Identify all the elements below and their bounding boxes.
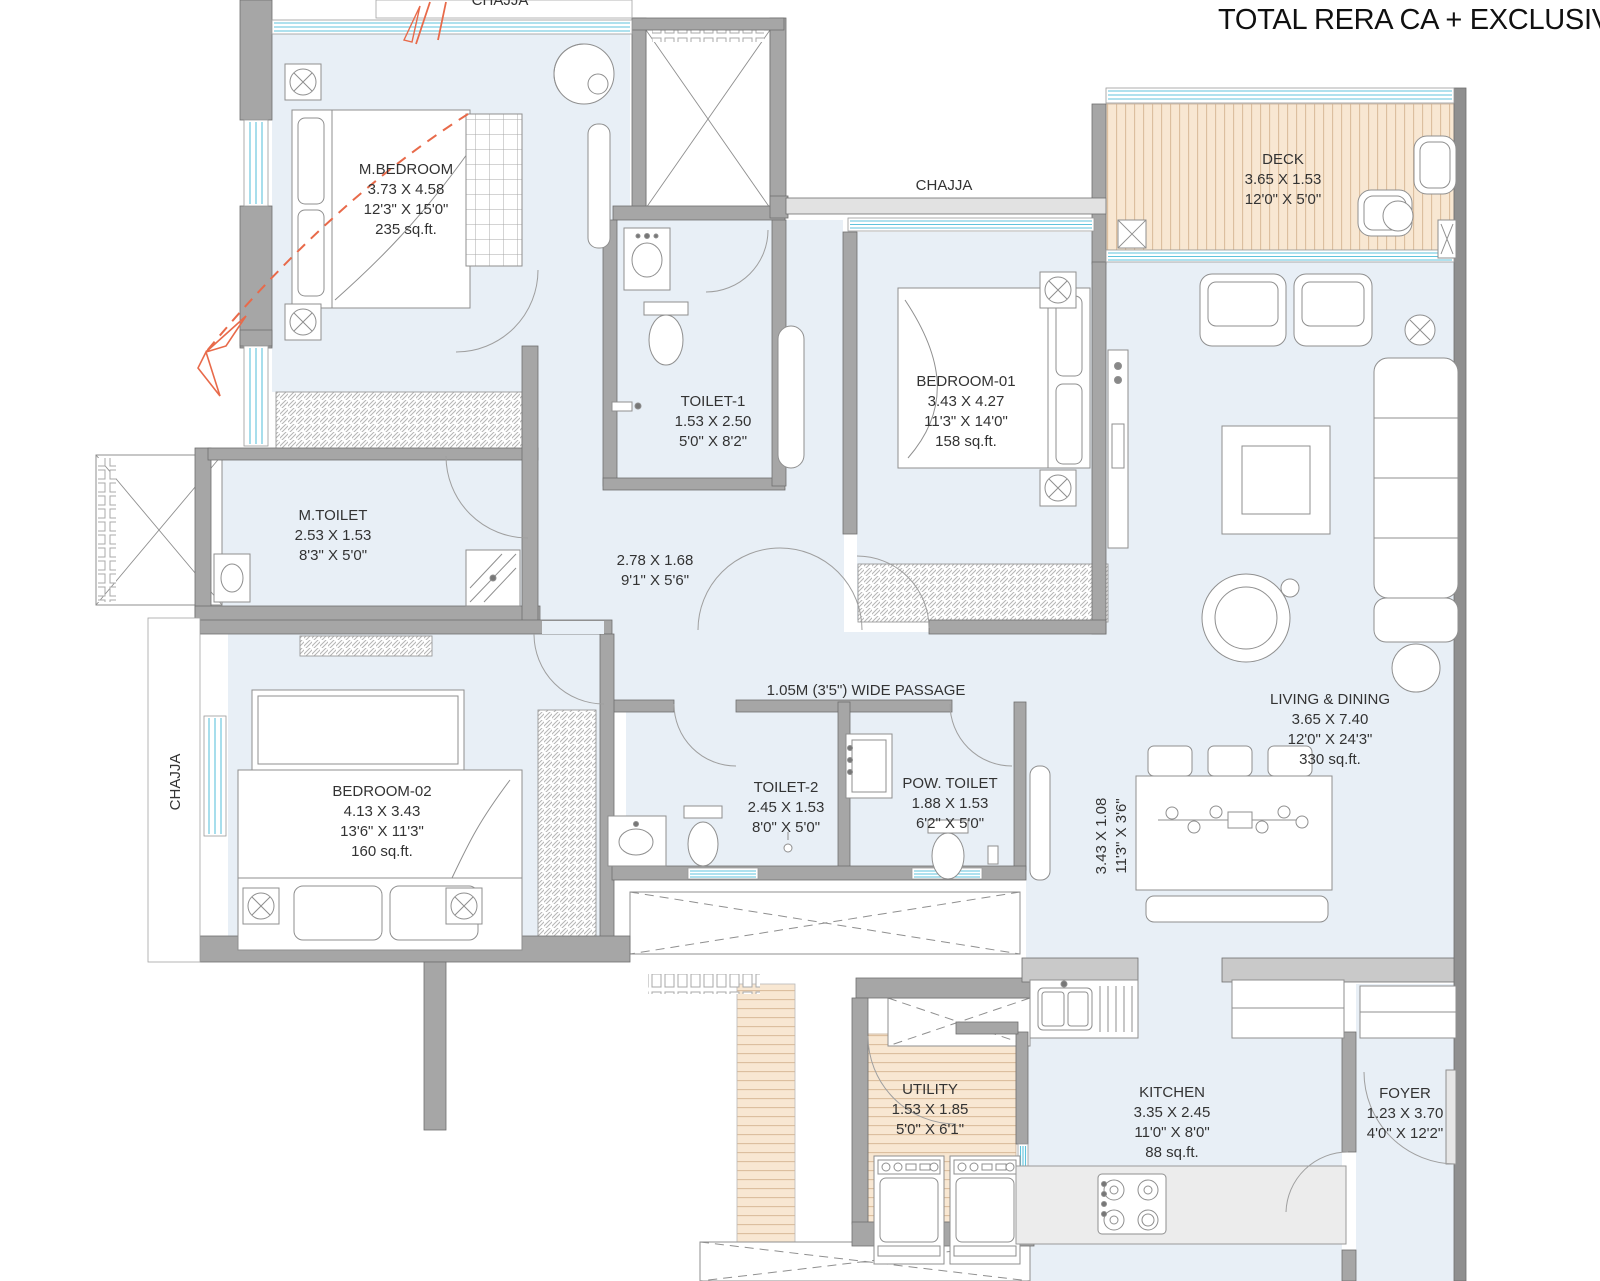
room-label-utility: UTILITY 1.53 X 1.85 5'0" X 6'1" — [892, 1080, 969, 1140]
room-label-toilet1: TOILET-1 1.53 X 2.50 5'0" X 8'2" — [675, 392, 752, 452]
room-name: FOYER — [1367, 1084, 1444, 1104]
label-passage-dims: 2.78 X 1.68 9'1" X 5'6" — [617, 551, 694, 591]
room-dim-ft: 12'0" X 24'3" — [1270, 730, 1390, 750]
room-label-pow-toilet: POW. TOILET 1.88 X 1.53 6'2" X 5'0" — [902, 774, 997, 834]
passage-dim-m: 2.78 X 1.68 — [617, 551, 694, 571]
room-area: 88 sq.ft. — [1134, 1143, 1211, 1163]
room-dim-ft: 8'0" X 5'0" — [748, 818, 825, 838]
room-dim-m: 1.53 X 2.50 — [675, 412, 752, 432]
room-dim-ft: 8'3" X 5'0" — [295, 546, 372, 566]
room-name: M.TOILET — [295, 506, 372, 526]
room-name: TOILET-2 — [748, 778, 825, 798]
room-dim-m: 1.88 X 1.53 — [902, 794, 997, 814]
room-label-foyer: FOYER 1.23 X 3.70 4'0" X 12'2" — [1367, 1084, 1444, 1144]
side-dim-m: 3.43 X 1.08 — [1092, 798, 1112, 875]
room-dim-m: 4.13 X 3.43 — [332, 802, 431, 822]
room-label-kitchen: KITCHEN 3.35 X 2.45 11'0" X 8'0" 88 sq.f… — [1134, 1083, 1211, 1163]
room-dim-m: 3.35 X 2.45 — [1134, 1103, 1211, 1123]
room-dim-m: 2.45 X 1.53 — [748, 798, 825, 818]
passage-dim-ft: 9'1" X 5'6" — [617, 571, 694, 591]
room-name: DECK — [1245, 150, 1322, 170]
floor-plan-drawing — [0, 0, 1600, 1281]
room-label-m-bedroom: M.BEDROOM 3.73 X 4.58 12'3" X 15'0" 235 … — [359, 160, 453, 240]
label-wide-passage: 1.05M (3'5") WIDE PASSAGE — [767, 681, 966, 701]
label-side-dims: 3.43 X 1.08 11'3" X 3'6" — [1092, 798, 1132, 875]
room-dim-ft: 13'6" X 11'3" — [332, 822, 431, 842]
room-dim-m: 1.23 X 3.70 — [1367, 1104, 1444, 1124]
room-name: LIVING & DINING — [1270, 690, 1390, 710]
room-label-toilet2: TOILET-2 2.45 X 1.53 8'0" X 5'0" — [748, 778, 825, 838]
label-chajja-left: CHAJJA — [166, 754, 186, 811]
room-name: POW. TOILET — [902, 774, 997, 794]
room-name: BEDROOM-01 — [916, 372, 1015, 392]
room-label-living-dining: LIVING & DINING 3.65 X 7.40 12'0" X 24'3… — [1270, 690, 1390, 770]
room-dim-ft: 11'0" X 8'0" — [1134, 1123, 1211, 1143]
label-chajja-mid: CHAJJA — [916, 176, 973, 196]
room-label-m-toilet: M.TOILET 2.53 X 1.53 8'3" X 5'0" — [295, 506, 372, 566]
room-label-deck: DECK 3.65 X 1.53 12'0" X 5'0" — [1245, 150, 1322, 210]
room-dim-m: 3.73 X 4.58 — [359, 180, 453, 200]
floor-plan: TOTAL RERA CA + EXCLUSIVE CA CHAJJA CHAJ… — [0, 0, 1600, 1281]
duct-strip — [737, 984, 795, 1281]
room-dim-ft: 4'0" X 12'2" — [1367, 1124, 1444, 1144]
room-area: 160 sq.ft. — [332, 842, 431, 862]
room-dim-ft: 12'3" X 15'0" — [359, 200, 453, 220]
side-dim-ft: 11'3" X 3'6" — [1112, 798, 1132, 875]
room-dim-m: 3.65 X 7.40 — [1270, 710, 1390, 730]
room-label-bedroom01: BEDROOM-01 3.43 X 4.27 11'3" X 14'0" 158… — [916, 372, 1015, 452]
room-dim-ft: 5'0" X 6'1" — [892, 1120, 969, 1140]
room-name: M.BEDROOM — [359, 160, 453, 180]
room-dim-ft: 12'0" X 5'0" — [1245, 190, 1322, 210]
rera-title: TOTAL RERA CA + EXCLUSIVE CA — [1218, 4, 1600, 37]
room-dim-ft: 6'2" X 5'0" — [902, 814, 997, 834]
room-area: 158 sq.ft. — [916, 432, 1015, 452]
room-area: 235 sq.ft. — [359, 220, 453, 240]
room-dim-ft: 5'0" X 8'2" — [675, 432, 752, 452]
label-chajja-top: CHAJJA — [472, 0, 529, 11]
room-name: BEDROOM-02 — [332, 782, 431, 802]
room-name: UTILITY — [892, 1080, 969, 1100]
room-area: 330 sq.ft. — [1270, 750, 1390, 770]
room-name: KITCHEN — [1134, 1083, 1211, 1103]
room-dim-m: 2.53 X 1.53 — [295, 526, 372, 546]
room-dim-m: 3.43 X 4.27 — [916, 392, 1015, 412]
room-dim-m: 1.53 X 1.85 — [892, 1100, 969, 1120]
room-name: TOILET-1 — [675, 392, 752, 412]
room-dim-ft: 11'3" X 14'0" — [916, 412, 1015, 432]
room-dim-m: 3.65 X 1.53 — [1245, 170, 1322, 190]
chajja-slab — [786, 198, 1106, 214]
room-label-bedroom02: BEDROOM-02 4.13 X 3.43 13'6" X 11'3" 160… — [332, 782, 431, 862]
